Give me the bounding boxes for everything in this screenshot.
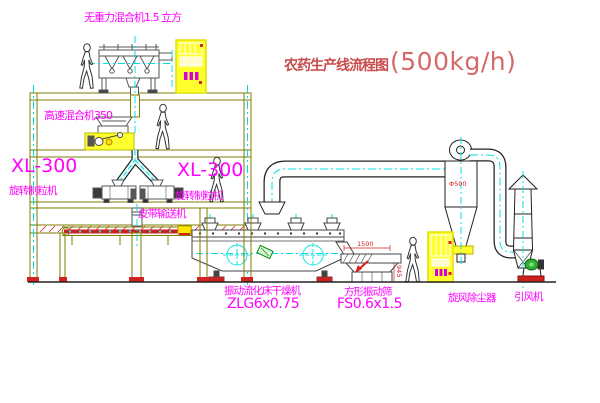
worker-icon: [80, 44, 93, 89]
title-text: 农药生产线流程图: [284, 55, 388, 75]
worker-icon: [406, 237, 419, 281]
control-cabinet-ground: [428, 232, 453, 282]
label-screen-model: FS0.6x1.5: [337, 297, 402, 311]
fluid-bed-dryer: [192, 214, 357, 282]
label-cyclone: 旋风除尘器: [448, 293, 496, 304]
label-belt-conveyor: 皮带输送机: [138, 209, 186, 220]
label-fan: 引风机: [514, 292, 543, 303]
dim-cyclone: Φ500: [449, 180, 467, 188]
granulator-left: [93, 180, 136, 203]
label-granulator-right-name: 旋转制粒机: [175, 191, 223, 202]
label-dryer-name: 振动流化床干燥机: [224, 286, 300, 297]
cad-drawing-canvas: 1500 945 Φ500 农药生产线流程图 (500kg/h) 无重力混合机1…: [0, 0, 600, 403]
worker-icon: [156, 104, 169, 149]
title-capacity: (500kg/h): [390, 47, 516, 76]
label-dryer-model: ZLG6x0.75: [227, 297, 299, 311]
label-high-speed-mixer: 高速混合机350: [44, 110, 112, 121]
label-granulator-left-model: XL-300: [11, 157, 77, 176]
cabinet-knobs: [184, 72, 199, 80]
label-gravity-mixer: 无重力混合机1.5 立方: [84, 12, 181, 23]
label-granulator-right-model: XL-300: [177, 161, 243, 180]
dim-screen-height: 945: [395, 265, 403, 277]
label-granulator-left-name: 旋转制粒机: [9, 186, 57, 197]
control-cabinet-upper: [176, 40, 206, 93]
dryer-exhaust-duct: [259, 169, 447, 214]
cabinet-knobs: [435, 269, 447, 276]
dim-screen-length: 1500: [357, 240, 374, 248]
drawing-title: 农药生产线流程图 (500kg/h): [284, 47, 516, 76]
